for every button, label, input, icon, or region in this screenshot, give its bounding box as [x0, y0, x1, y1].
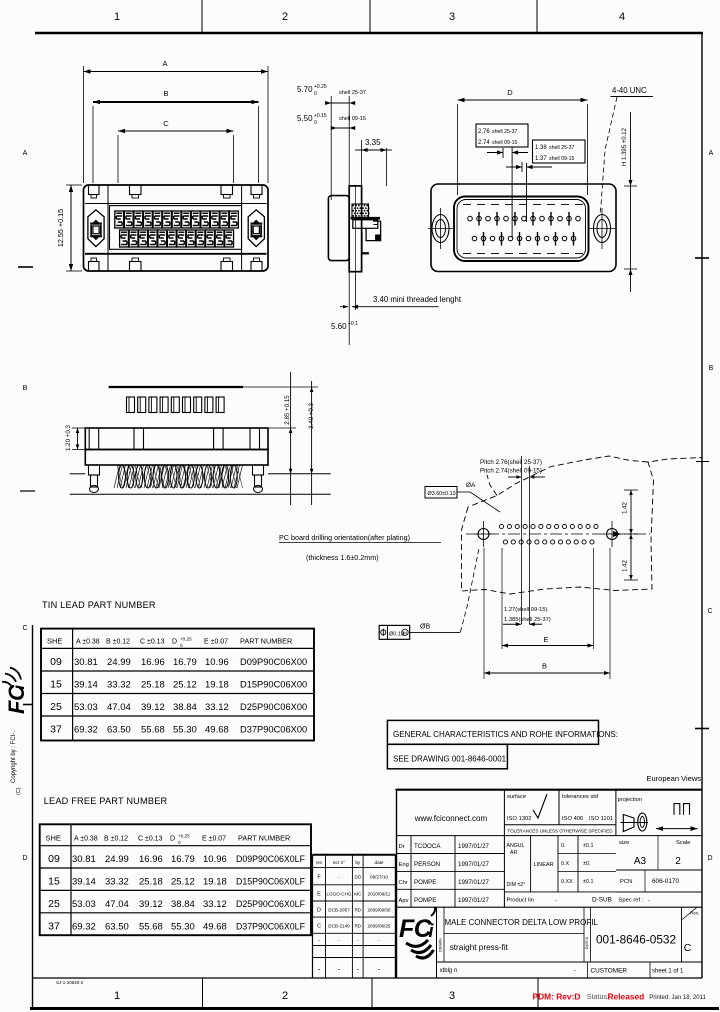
svg-text:1997/01/27: 1997/01/27 — [458, 897, 490, 904]
svg-text:Rev.: Rev. — [690, 911, 699, 916]
svg-text:PART NUMBER: PART NUMBER — [240, 637, 292, 646]
svg-text:2: 2 — [675, 856, 681, 867]
svg-text:(thickness 1.6±0.2mm): (thickness 1.6±0.2mm) — [306, 553, 379, 562]
svg-text:M: M — [403, 630, 407, 635]
svg-text:xtblg n: xtblg n — [440, 968, 458, 974]
svg-text:2010/06/11: 2010/06/11 — [368, 891, 391, 896]
svg-text:straight press-fit: straight press-fit — [450, 943, 509, 952]
svg-text:DRAWN: DRAWN — [439, 938, 443, 952]
svg-text:D15P90C06X0LF: D15P90C06X0LF — [236, 877, 306, 887]
svg-text:E: E — [317, 891, 321, 897]
svg-text:shell 09-15: shell 09-15 — [339, 116, 366, 122]
svg-text:ØA: ØA — [466, 482, 476, 489]
svg-text:SHE: SHE — [46, 834, 61, 843]
svg-text:±0.1: ±0.1 — [583, 843, 593, 849]
svg-text:38.84: 38.84 — [173, 702, 197, 713]
svg-text:DIM ±2°: DIM ±2° — [507, 882, 526, 888]
svg-text:-: - — [357, 967, 359, 973]
svg-text:12.55 +0.15: 12.55 +0.15 — [56, 209, 65, 247]
svg-text:1.42: 1.42 — [623, 502, 629, 514]
svg-text:38.84: 38.84 — [171, 899, 195, 910]
svg-text:PERSON: PERSON — [414, 861, 440, 868]
svg-text:D: D — [317, 908, 321, 914]
svg-text:49.68: 49.68 — [205, 725, 229, 736]
svg-text:D15P90C06X00: D15P90C06X00 — [240, 680, 307, 690]
svg-text:30.81: 30.81 — [72, 854, 96, 865]
svg-text:0.: 0. — [561, 843, 566, 849]
svg-text:2.85 +0.15: 2.85 +0.15 — [284, 395, 291, 425]
svg-text:2.74: 2.74 — [478, 140, 490, 146]
svg-text:55.30: 55.30 — [171, 921, 195, 932]
svg-text:A3: A3 — [634, 856, 647, 867]
svg-text:16.79: 16.79 — [173, 657, 197, 668]
svg-text:39.14: 39.14 — [72, 877, 96, 888]
svg-text:69.32: 69.32 — [72, 921, 96, 932]
svg-text:39.12: 39.12 — [141, 702, 165, 713]
svg-text:4-40 UNC: 4-40 UNC — [612, 86, 647, 95]
svg-text:TCOOCA: TCOOCA — [414, 843, 441, 850]
svg-text:SJ-1-20640-2: SJ-1-20640-2 — [56, 980, 84, 985]
svg-text:DWG N: DWG N — [585, 936, 589, 949]
svg-text:Pitch 2.74(shell 09-15): Pitch 2.74(shell 09-15) — [480, 468, 542, 475]
svg-text:shell 09-15: shell 09-15 — [492, 140, 517, 146]
svg-text:37: 37 — [50, 724, 62, 736]
svg-text:5.60: 5.60 — [331, 322, 347, 331]
svg-text:B ±0.12: B ±0.12 — [104, 836, 128, 843]
svg-text:date: date — [375, 860, 384, 865]
svg-text:MC: MC — [354, 891, 362, 896]
svg-text:D09P90C06X0LF: D09P90C06X0LF — [236, 854, 306, 864]
svg-text:shell 25-37: shell 25-37 — [549, 145, 574, 151]
svg-text:+0.25: +0.25 — [178, 834, 190, 839]
svg-text:1: 1 — [114, 990, 120, 1002]
svg-text:55.68: 55.68 — [139, 921, 163, 932]
svg-text:Scale: Scale — [676, 840, 691, 846]
svg-text:3: 3 — [449, 990, 455, 1002]
svg-text:16.79: 16.79 — [171, 854, 195, 865]
svg-text:C ±0.13: C ±0.13 — [140, 639, 165, 646]
svg-text:-: - — [318, 938, 320, 944]
svg-text:39.14: 39.14 — [74, 680, 98, 691]
svg-text:ISO 1302: ISO 1302 — [507, 816, 532, 822]
svg-text:25.12: 25.12 — [173, 680, 197, 691]
svg-text:D: D — [22, 855, 27, 862]
svg-text:1.27(shell 09-15): 1.27(shell 09-15) — [504, 607, 548, 613]
svg-text:by: by — [355, 860, 361, 865]
svg-text:55.68: 55.68 — [141, 725, 165, 736]
svg-text:-: - — [574, 967, 576, 974]
svg-text:B ±0.12: B ±0.12 — [106, 639, 130, 646]
svg-text:DCB-2057: DCB-2057 — [328, 908, 350, 913]
svg-text:Ø3.60±0.13: Ø3.60±0.13 — [428, 491, 456, 497]
svg-text:0.XX: 0.XX — [561, 879, 573, 885]
svg-text:69.32: 69.32 — [74, 725, 98, 736]
svg-text:08/27/10: 08/27/10 — [370, 875, 388, 880]
svg-text:33.12: 33.12 — [203, 899, 227, 910]
svg-text:25: 25 — [48, 898, 60, 910]
svg-text:D: D — [172, 639, 177, 646]
svg-text:63.50: 63.50 — [105, 921, 129, 932]
svg-text:LEAD FREE PART NUMBER: LEAD FREE PART NUMBER — [44, 796, 168, 806]
svg-text:-: - — [378, 967, 380, 973]
svg-text:A: A — [23, 150, 28, 157]
svg-text:shell 09-15: shell 09-15 — [549, 156, 574, 162]
svg-text:37: 37 — [48, 920, 60, 932]
svg-text:Printed: Jan 18, 2011: Printed: Jan 18, 2011 — [649, 995, 706, 1001]
svg-text:size: size — [619, 840, 629, 846]
svg-text:D09P90C06X00: D09P90C06X00 — [240, 657, 307, 667]
svg-text:C: C — [22, 625, 27, 632]
svg-text:shell 25-37: shell 25-37 — [492, 129, 517, 135]
svg-text:A ±0.38: A ±0.38 — [74, 836, 98, 843]
svg-text:i: i — [11, 685, 28, 690]
svg-text:B: B — [542, 662, 547, 671]
svg-text:POMPE: POMPE — [414, 897, 436, 904]
svg-text:-: - — [648, 898, 650, 904]
svg-text:33.12: 33.12 — [205, 702, 229, 713]
svg-text:0: 0 — [180, 643, 183, 648]
svg-text:25.18: 25.18 — [139, 877, 163, 888]
svg-text:33.32: 33.32 — [107, 680, 131, 691]
svg-text:(C): (C) — [16, 787, 22, 795]
svg-text:Status:: Status: — [587, 992, 609, 1001]
svg-text:H 1.395 +0.12: H 1.395 +0.12 — [622, 127, 628, 166]
svg-text:Chr: Chr — [399, 880, 408, 886]
svg-text:D: D — [170, 836, 175, 843]
svg-text:1: 1 — [114, 11, 120, 23]
svg-text:09: 09 — [48, 853, 60, 865]
svg-text:Apv: Apv — [399, 898, 409, 904]
svg-text:RD: RD — [354, 924, 361, 929]
svg-text:001-8646-0532: 001-8646-0532 — [596, 933, 676, 947]
svg-text:MALE CONNECTOR DELTA LOW PROFI: MALE CONNECTOR DELTA LOW PROFIL — [445, 918, 599, 927]
svg-text:ISO 406: ISO 406 — [562, 816, 583, 822]
svg-text:shell 25-37: shell 25-37 — [339, 90, 366, 96]
svg-text:-: - — [555, 898, 557, 904]
svg-text:1.20 +0.3: 1.20 +0.3 — [65, 424, 72, 451]
svg-text:GENERAL CHARACTERISTICS AND RO: GENERAL CHARACTERISTICS AND ROHE INFORMA… — [393, 730, 618, 739]
svg-text:D: D — [707, 855, 712, 862]
svg-text:B: B — [163, 89, 168, 98]
svg-text:Pitch 2.76(shell 25-37): Pitch 2.76(shell 25-37) — [480, 459, 542, 466]
svg-text:0: 0 — [314, 120, 317, 126]
svg-text:D25P90C06X0LF: D25P90C06X0LF — [236, 899, 306, 909]
svg-text:RD: RD — [354, 908, 361, 913]
svg-text:PC board drilling orientation(: PC board drilling orientation(after plat… — [279, 533, 410, 542]
svg-text:SHE: SHE — [47, 637, 62, 646]
svg-text:30.81: 30.81 — [74, 657, 98, 668]
svg-text:2009/09/30: 2009/09/30 — [368, 908, 391, 913]
svg-text:surface: surface — [507, 794, 526, 800]
svg-text:15: 15 — [48, 876, 60, 888]
svg-text:39.12: 39.12 — [139, 899, 163, 910]
svg-text:+0.15: +0.15 — [314, 113, 327, 119]
svg-text:09: 09 — [50, 656, 62, 668]
svg-text:±0.: ±0. — [583, 861, 590, 867]
svg-text:PART NUMBER: PART NUMBER — [238, 834, 290, 843]
svg-text:tolerances std: tolerances std — [562, 794, 598, 800]
svg-text:33.32: 33.32 — [105, 877, 129, 888]
svg-text:15: 15 — [50, 679, 62, 691]
svg-text:0: 0 — [314, 91, 317, 97]
svg-text:Spec ref :: Spec ref : — [619, 898, 644, 904]
svg-text:AR: AR — [510, 850, 517, 856]
svg-text:1.385(shell 25-37): 1.385(shell 25-37) — [504, 617, 551, 623]
svg-text:A: A — [162, 59, 167, 68]
svg-text:5.50: 5.50 — [297, 114, 313, 123]
svg-text:53.03: 53.03 — [72, 899, 96, 910]
svg-text:3.35: 3.35 — [365, 138, 381, 147]
svg-text:rev: rev — [316, 860, 323, 865]
svg-text:1.38: 1.38 — [535, 145, 547, 151]
svg-text:24.99: 24.99 — [107, 657, 131, 668]
svg-text:10.96: 10.96 — [205, 657, 229, 668]
svg-text:+0.25: +0.25 — [314, 84, 327, 90]
svg-text:DCB-2149: DCB-2149 — [328, 924, 350, 929]
svg-text:Copyright by : FCI-.: Copyright by : FCI-. — [11, 731, 17, 783]
svg-text:1.37: 1.37 — [535, 156, 547, 162]
svg-text:B: B — [709, 365, 714, 372]
svg-text:49.68: 49.68 — [203, 921, 227, 932]
svg-text:ecr n°: ecr n° — [333, 860, 345, 865]
svg-text:C: C — [684, 942, 692, 954]
svg-text:16.96: 16.96 — [139, 854, 163, 865]
svg-text:PDM: Rev:D: PDM: Rev:D — [533, 992, 581, 1002]
svg-text:2: 2 — [282, 11, 288, 23]
svg-text:B: B — [23, 385, 28, 392]
svg-text:3.40 mini threaded lenght: 3.40 mini threaded lenght — [373, 295, 462, 304]
svg-text:Dr: Dr — [399, 844, 405, 850]
svg-text:POMPE: POMPE — [414, 879, 436, 886]
svg-text:606-0170: 606-0170 — [652, 878, 679, 885]
svg-text:19.18: 19.18 — [205, 680, 229, 691]
svg-text:A: A — [709, 150, 714, 157]
svg-text:D: D — [507, 88, 513, 97]
svg-text:E ±0.07: E ±0.07 — [204, 639, 228, 646]
svg-text:0.X: 0.X — [561, 861, 569, 867]
svg-text:1997/01/27: 1997/01/27 — [458, 879, 490, 886]
svg-text:sheet 1 of 1: sheet 1 of 1 — [652, 969, 684, 975]
svg-text:55.30: 55.30 — [173, 725, 197, 736]
svg-text:1.42: 1.42 — [623, 560, 629, 572]
svg-text:Released: Released — [608, 992, 645, 1002]
svg-text:47.04: 47.04 — [107, 702, 131, 713]
svg-text:25.12: 25.12 — [171, 877, 195, 888]
svg-text:PCN: PCN — [620, 879, 632, 885]
svg-text:4: 4 — [619, 11, 625, 23]
svg-text:2.76: 2.76 — [478, 129, 490, 135]
svg-text:D-SUB: D-SUB — [592, 897, 612, 904]
svg-text:53.03: 53.03 — [74, 702, 98, 713]
svg-text:C: C — [707, 608, 712, 615]
svg-text:LOGO-CHG: LOGO-CHG — [326, 891, 351, 896]
svg-text:TOLERANCES UNLESS OTHERWISE SP: TOLERANCES UNLESS OTHERWISE SPECIFIED — [507, 829, 613, 834]
svg-text:DD: DD — [354, 875, 361, 880]
svg-text:D37P90C06X00: D37P90C06X00 — [240, 725, 307, 735]
svg-text:19.18: 19.18 — [203, 877, 227, 888]
svg-text:European Views: European Views — [647, 774, 702, 783]
svg-text:+0.25: +0.25 — [180, 637, 192, 642]
svg-text:-: - — [338, 967, 340, 973]
svg-text:Eng: Eng — [399, 862, 409, 868]
svg-text:1997/01/27: 1997/01/27 — [458, 861, 490, 868]
svg-text:2: 2 — [282, 990, 288, 1002]
svg-text:E ±0.07: E ±0.07 — [202, 836, 226, 843]
svg-text:projection: projection — [618, 797, 642, 803]
svg-text:E: E — [543, 635, 548, 644]
svg-text:C: C — [163, 119, 169, 128]
svg-text:A ±0.38: A ±0.38 — [76, 639, 100, 646]
svg-text:D25P90C06X00: D25P90C06X00 — [240, 702, 307, 712]
svg-text:2009/06/25: 2009/06/25 — [368, 924, 391, 929]
svg-text:63.50: 63.50 — [107, 725, 131, 736]
svg-text:SEE DRAWING 001-8646-0001: SEE DRAWING 001-8646-0001 — [393, 755, 507, 764]
svg-text:10.96: 10.96 — [203, 854, 227, 865]
svg-text:ANGUL: ANGUL — [507, 843, 525, 849]
svg-text:5.70: 5.70 — [297, 85, 313, 94]
svg-text:TIN LEAD PART NUMBER: TIN LEAD PART NUMBER — [42, 600, 156, 610]
svg-text:ISO 1101: ISO 1101 — [589, 816, 613, 822]
svg-text:D37P90C06X0LF: D37P90C06X0LF — [236, 921, 306, 931]
svg-text:-: - — [318, 967, 320, 973]
svg-text:47.04: 47.04 — [105, 899, 129, 910]
svg-text:±0.1: ±0.1 — [583, 879, 593, 885]
svg-text:0: 0 — [178, 840, 181, 845]
svg-text:3: 3 — [449, 11, 455, 23]
svg-text:C: C — [317, 924, 321, 930]
svg-text:1997/01/27: 1997/01/27 — [458, 843, 490, 850]
svg-text:ØB: ØB — [420, 624, 430, 631]
svg-text:CUSTOMER: CUSTOMER — [591, 968, 628, 975]
svg-text:C ±0.13: C ±0.13 — [138, 836, 163, 843]
svg-text:LINEAR: LINEAR — [534, 862, 554, 868]
svg-text:16.96: 16.96 — [141, 657, 165, 668]
svg-text:www.fciconnect.com: www.fciconnect.com — [414, 814, 488, 823]
svg-text:Product lin: Product lin — [507, 898, 534, 904]
svg-text:25: 25 — [50, 701, 62, 713]
svg-text:24.99: 24.99 — [105, 854, 129, 865]
svg-text:25.18: 25.18 — [141, 680, 165, 691]
